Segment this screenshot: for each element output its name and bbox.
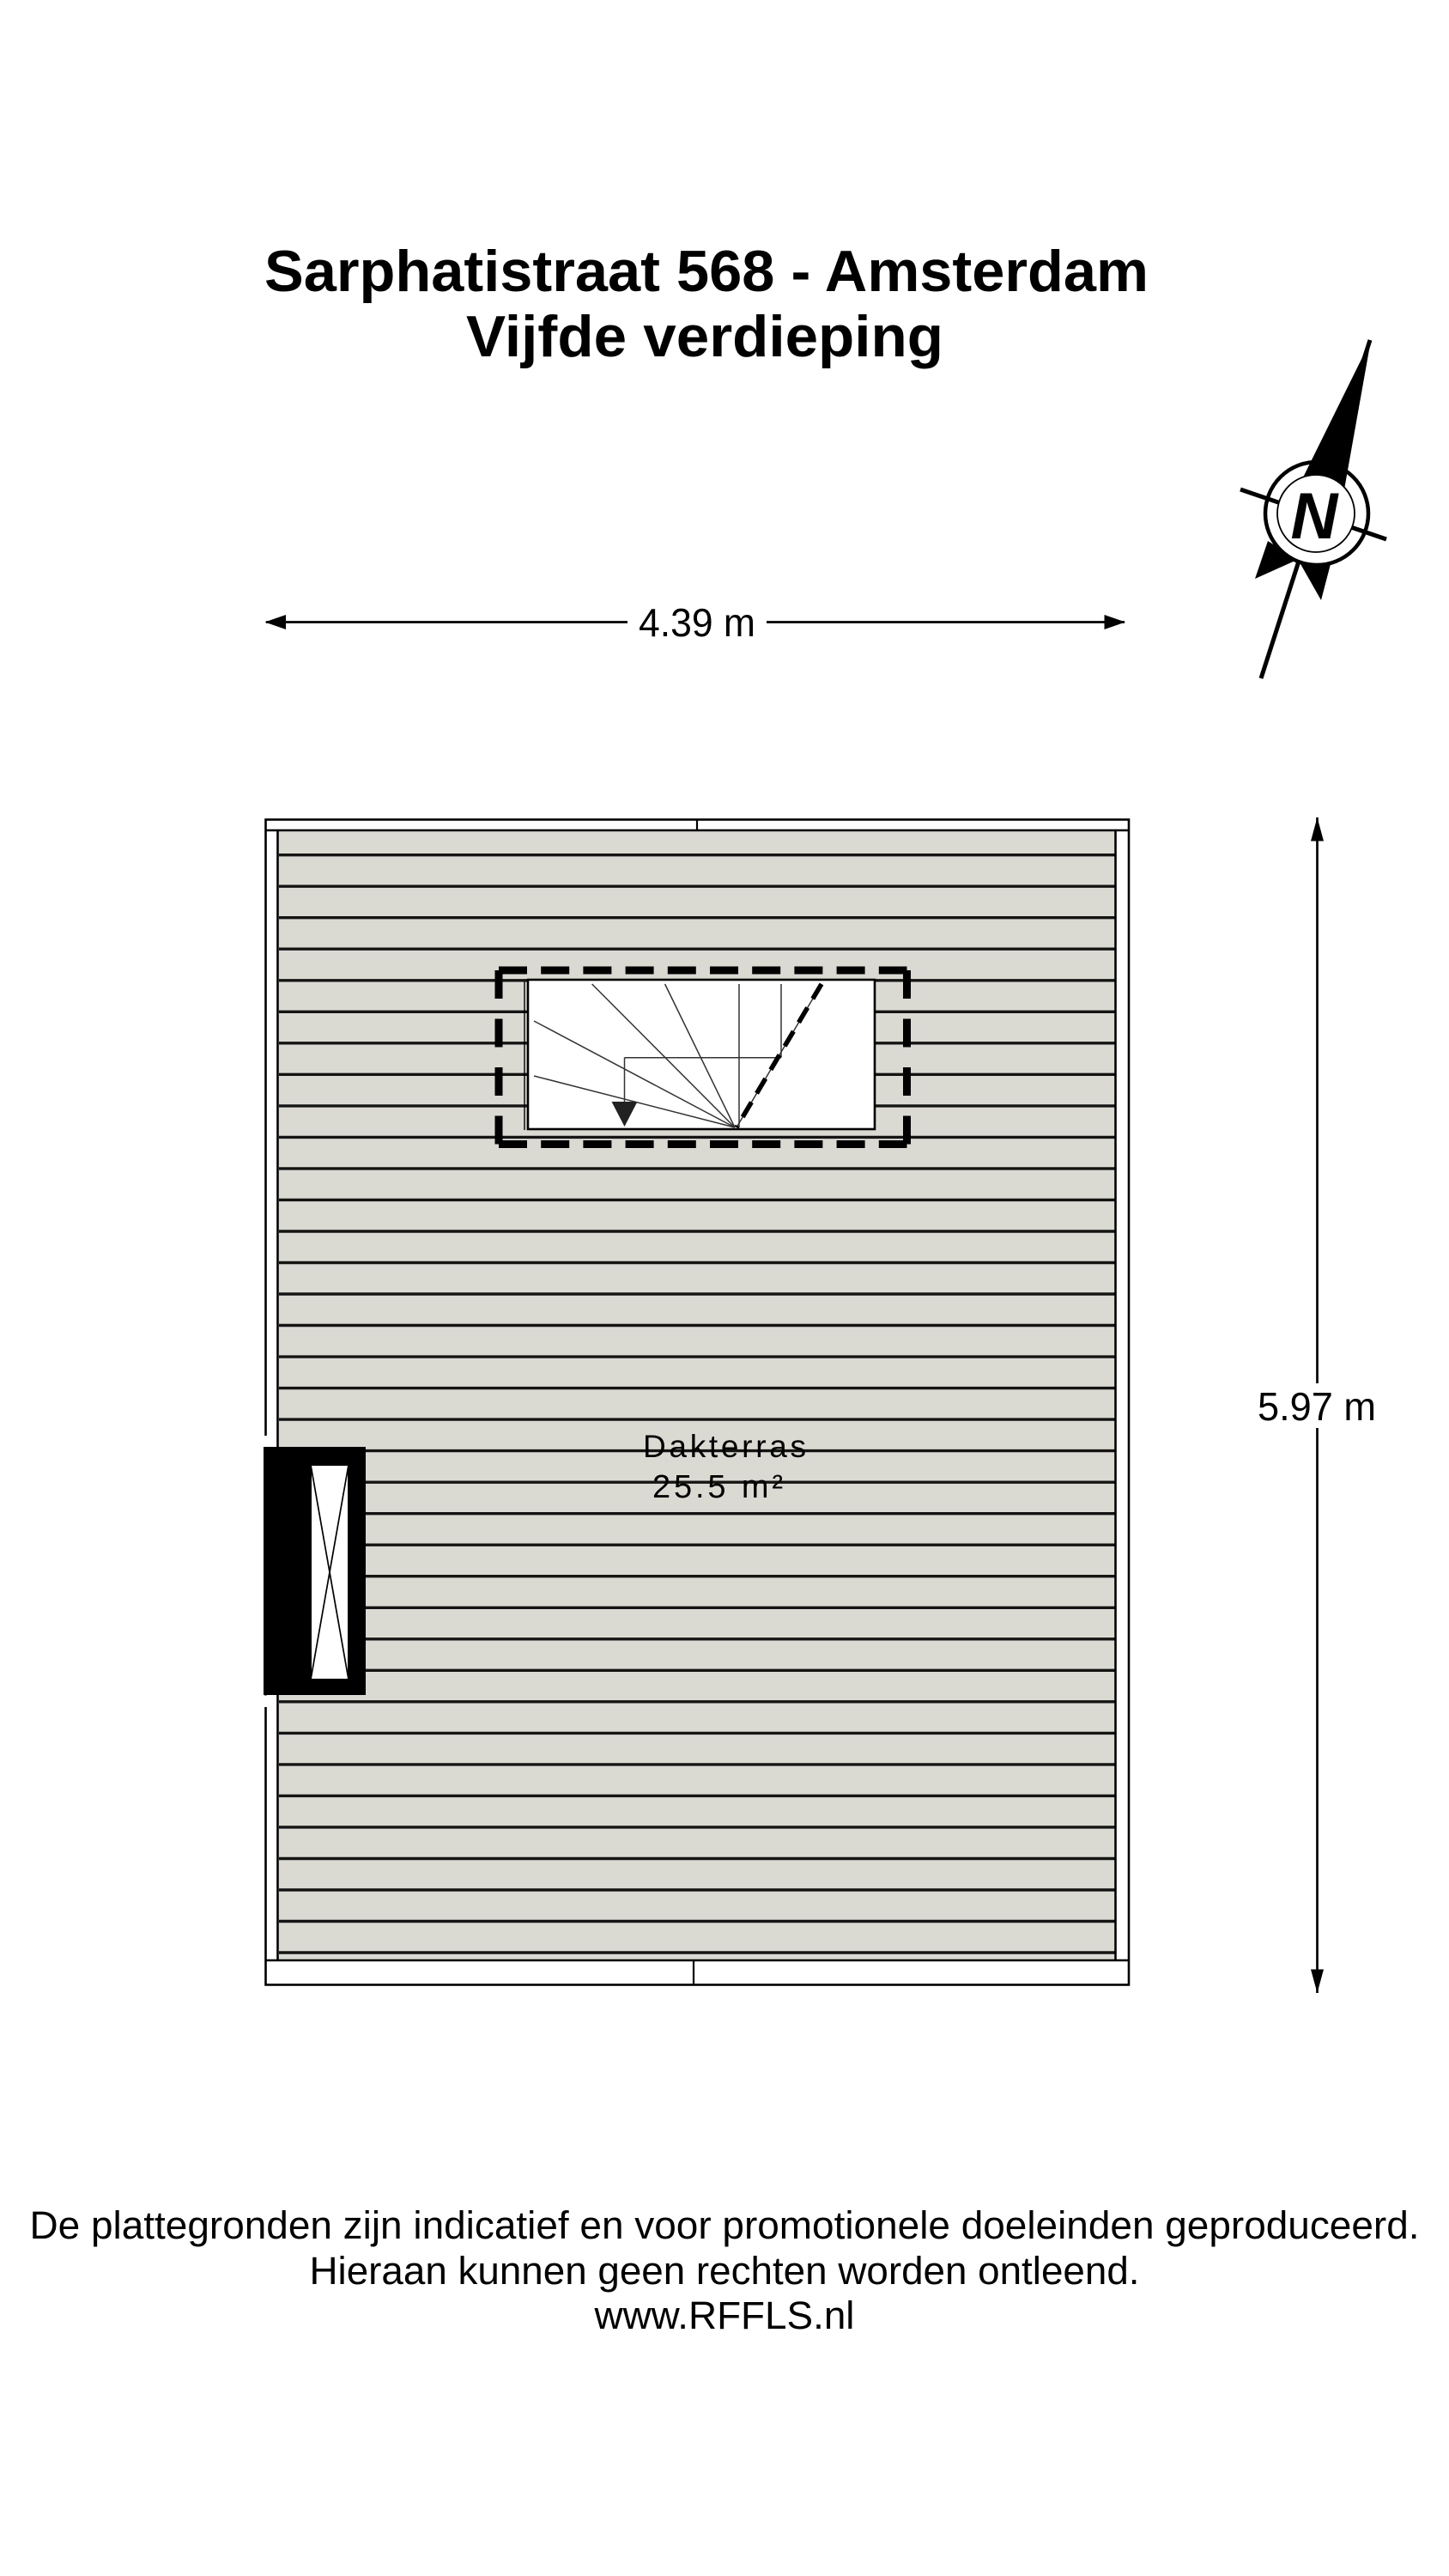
svg-text:De plattegronden zijn indicati: De plattegronden zijn indicatief en voor…	[30, 2203, 1420, 2247]
svg-text:Hieraan kunnen geen rechten wo: Hieraan kunnen geen rechten worden ontle…	[310, 2249, 1140, 2293]
svg-text:N: N	[1291, 480, 1340, 553]
svg-text:Vijfde verdieping: Vijfde verdieping	[466, 304, 943, 369]
svg-text:Sarphatistraat 568 - Amsterdam: Sarphatistraat 568 - Amsterdam	[264, 239, 1149, 304]
svg-text:5.97 m: 5.97 m	[1258, 1384, 1376, 1429]
svg-text:www.RFFLS.nl: www.RFFLS.nl	[593, 2293, 854, 2337]
svg-text:4.39 m: 4.39 m	[639, 600, 755, 645]
